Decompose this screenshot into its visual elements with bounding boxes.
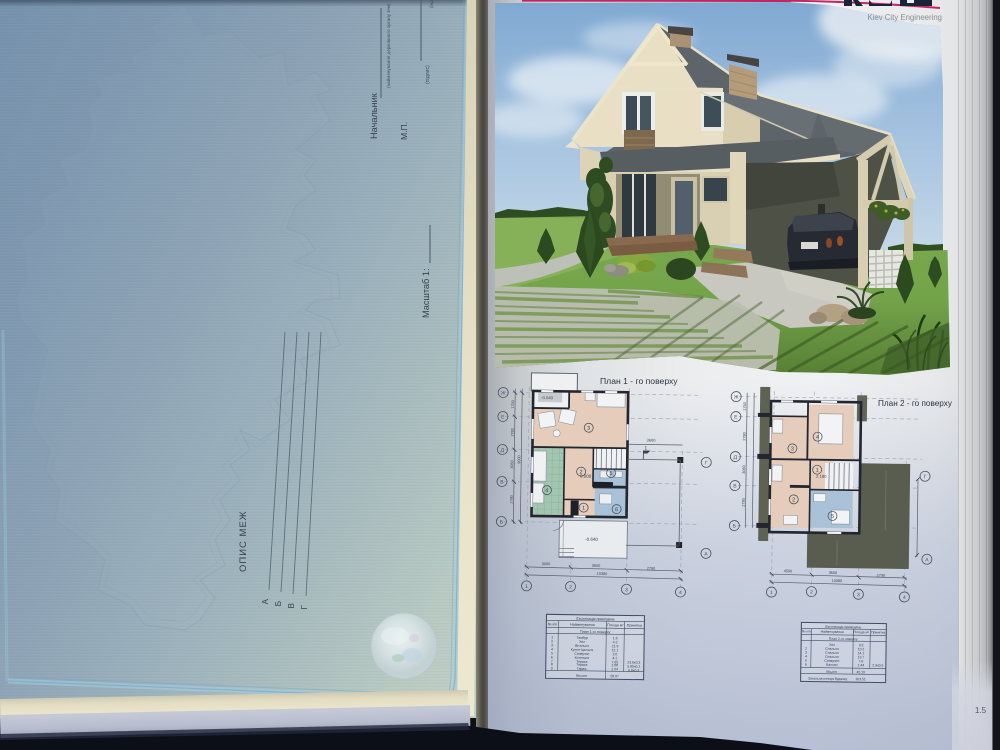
svg-text:103.51: 103.51 — [855, 677, 866, 681]
svg-text:5: 5 — [610, 471, 613, 477]
svg-text:В: В — [287, 603, 296, 608]
svg-text:Б: Б — [274, 601, 283, 606]
svg-text:Експлікація приміщень: Експлікація приміщень — [825, 625, 861, 630]
svg-text:Площа м²: Площа м² — [854, 630, 870, 634]
svg-text:1: 1 — [582, 506, 585, 512]
svg-text:№ к/п: № к/п — [548, 622, 557, 626]
svg-text:Примітка: Примітка — [871, 630, 885, 634]
svg-text:1.44: 1.44 — [857, 663, 864, 667]
svg-text:3600: 3600 — [592, 564, 601, 568]
svg-text:5: 5 — [831, 514, 834, 520]
svg-text:-0.640: -0.640 — [585, 537, 598, 542]
svg-text:2790: 2790 — [877, 574, 886, 578]
svg-text:4: 4 — [816, 435, 819, 441]
svg-text:Начальник: Начальник — [369, 92, 379, 139]
svg-text:2: 2 — [810, 590, 813, 596]
svg-text:1750: 1750 — [743, 402, 747, 411]
svg-text:В: В — [500, 479, 504, 485]
svg-text:(інде: (інде — [429, 0, 434, 8]
svg-text:1: 1 — [525, 584, 528, 590]
svg-text:Всього: Всього — [826, 670, 837, 674]
svg-text:-0.040: -0.040 — [541, 395, 554, 400]
svg-text:Е: Е — [734, 415, 738, 421]
svg-text:Гараж: Гараж — [577, 667, 587, 671]
svg-text:3060: 3060 — [510, 460, 514, 469]
svg-text:Б: Б — [500, 519, 504, 525]
svg-text:А: А — [704, 551, 708, 557]
svg-text:Загальна площа будинку: Загальна площа будинку — [808, 677, 848, 682]
svg-text:М.П.: М.П. — [399, 122, 409, 140]
svg-text:ОПИС МЕЖ: ОПИС МЕЖ — [238, 510, 249, 572]
svg-text:2790: 2790 — [647, 567, 656, 571]
svg-text:А: А — [925, 557, 929, 563]
svg-text:2780: 2780 — [511, 428, 515, 437]
svg-text:А: А — [261, 598, 270, 604]
svg-text:10380: 10380 — [597, 572, 608, 576]
svg-text:9: 9 — [551, 666, 553, 670]
svg-text:Масштаб 1:: Масштаб 1: — [421, 268, 431, 318]
svg-text:Ж: Ж — [734, 395, 739, 401]
svg-text:3: 3 — [791, 446, 794, 452]
svg-text:3600: 3600 — [829, 571, 838, 575]
svg-text:1: 1 — [644, 446, 647, 452]
svg-text:Найменування: Найменування — [821, 630, 844, 634]
svg-text:Експлікація приміщень: Експлікація приміщень — [576, 617, 614, 622]
svg-text:2780: 2780 — [742, 498, 746, 507]
svg-text:4: 4 — [679, 590, 682, 596]
svg-text:Е: Е — [501, 415, 505, 421]
svg-text:Площа м²: Площа м² — [607, 623, 624, 627]
svg-text:4: 4 — [545, 488, 548, 494]
svg-text:10380: 10380 — [832, 579, 843, 583]
svg-text:45.19: 45.19 — [856, 670, 865, 674]
svg-text:2.04: 2.04 — [611, 667, 618, 671]
svg-text:Kiev City Engineering: Kiev City Engineering — [867, 13, 942, 22]
svg-text:3060: 3060 — [742, 465, 746, 474]
svg-text:Примітка: Примітка — [627, 623, 642, 627]
svg-text:3000: 3000 — [542, 562, 551, 566]
svg-text:Д: Д — [734, 455, 738, 461]
svg-text:4: 4 — [903, 595, 906, 601]
svg-text:1: 1 — [770, 590, 773, 596]
svg-text:План 2 - го поверху: План 2 - го поверху — [878, 399, 953, 408]
svg-text:Всього: Всього — [576, 674, 587, 678]
svg-text:Ж: Ж — [501, 390, 506, 396]
svg-text:Г: Г — [924, 474, 927, 480]
svg-text:Найменування: Найменування — [570, 623, 595, 627]
svg-text:Г: Г — [300, 604, 309, 609]
svg-text:2: 2 — [580, 470, 583, 476]
svg-text:6: 6 — [615, 507, 618, 513]
svg-text:3: 3 — [625, 587, 628, 593]
svg-text:План 2-го поверху: План 2-го поверху — [829, 637, 858, 641]
svg-text:9000: 9000 — [517, 455, 521, 464]
svg-text:(найменування державного орган: (найменування державного органу зем) — [385, 3, 391, 88]
svg-text:6.8х0.3: 6.8х0.3 — [628, 668, 639, 672]
svg-text:3600: 3600 — [647, 438, 657, 443]
svg-text:2: 2 — [792, 497, 795, 503]
svg-text:2.9х0.5: 2.9х0.5 — [872, 663, 883, 667]
svg-text:6: 6 — [805, 662, 807, 666]
svg-text:Г: Г — [705, 460, 708, 466]
svg-text:План 1 - го поверху: План 1 - го поверху — [600, 376, 678, 386]
svg-text:План 1-го поверху: План 1-го поверху — [580, 630, 611, 634]
svg-text:3: 3 — [587, 426, 590, 432]
svg-text:№ к/п: № к/п — [802, 629, 811, 633]
svg-text:В: В — [733, 484, 737, 490]
svg-text:2780: 2780 — [510, 495, 514, 504]
svg-text:1: 1 — [816, 468, 819, 474]
svg-text:Балкон: Балкон — [826, 663, 838, 667]
svg-text:2780: 2780 — [743, 432, 747, 441]
svg-text:3: 3 — [857, 592, 860, 598]
svg-text:Б: Б — [733, 524, 737, 530]
svg-text:Д: Д — [501, 447, 505, 453]
svg-text:(підпис): (підпис) — [425, 65, 431, 84]
svg-text:1750: 1750 — [511, 400, 515, 409]
svg-text:4500: 4500 — [784, 569, 793, 573]
svg-text:58.07: 58.07 — [610, 674, 619, 678]
svg-text:2: 2 — [569, 584, 572, 590]
